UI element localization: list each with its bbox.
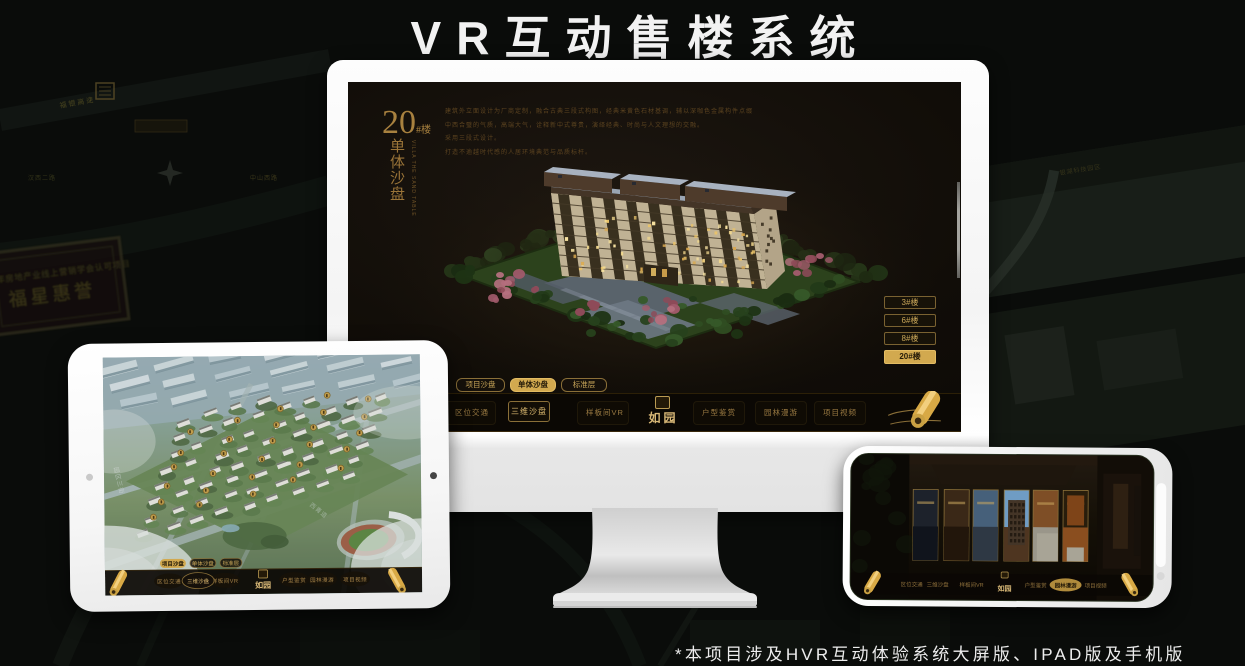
svg-text:如园: 如园 (998, 584, 1012, 593)
svg-text:如园: 如园 (255, 580, 271, 590)
svg-text:项目沙盘: 项目沙盘 (162, 560, 185, 568)
svg-text:项目视频: 项目视频 (1085, 582, 1108, 590)
svg-text:区位交通: 区位交通 (157, 577, 181, 585)
svg-text:区位交通: 区位交通 (901, 580, 924, 588)
svg-text:汉西二路: 汉西二路 (28, 174, 56, 182)
svg-text:标准层: 标准层 (223, 559, 240, 567)
svg-text:三维沙盘: 三维沙盘 (927, 580, 950, 588)
svg-text:样板间VR: 样板间VR (959, 581, 983, 589)
svg-text:样板间VR: 样板间VR (212, 577, 239, 585)
svg-text:园林漫游: 园林漫游 (1055, 581, 1078, 589)
svg-text:单体沙盘: 单体沙盘 (192, 559, 215, 567)
svg-text:园林漫游: 园林漫游 (310, 576, 334, 584)
svg-text:户型鉴赏: 户型鉴赏 (282, 576, 306, 584)
svg-text:户型鉴赏: 户型鉴赏 (1025, 581, 1048, 589)
svg-text:三维沙盘: 三维沙盘 (187, 577, 210, 585)
svg-text:项目视频: 项目视频 (343, 575, 367, 583)
svg-text:中山西路: 中山西路 (250, 174, 278, 182)
